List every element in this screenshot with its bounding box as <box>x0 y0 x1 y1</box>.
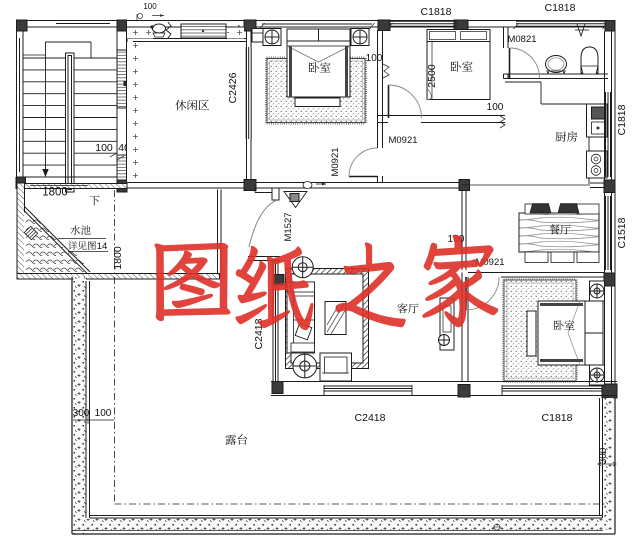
svg-text:C1818: C1818 <box>421 6 452 18</box>
svg-text:100: 100 <box>143 2 157 11</box>
svg-text:C1818: C1818 <box>545 2 576 14</box>
svg-text:M0821: M0821 <box>507 34 536 45</box>
svg-text:C1518: C1518 <box>616 217 628 248</box>
svg-text:C1818: C1818 <box>542 412 573 424</box>
svg-text:100: 100 <box>95 142 113 154</box>
svg-text:C2418: C2418 <box>355 412 386 424</box>
svg-text:14: 14 <box>97 241 108 252</box>
svg-text:300: 300 <box>598 447 609 464</box>
svg-text:100: 100 <box>95 408 112 419</box>
svg-text:M0921: M0921 <box>388 135 417 146</box>
svg-text:1800: 1800 <box>112 246 124 270</box>
svg-text:M0921: M0921 <box>330 147 341 176</box>
svg-text:1800: 1800 <box>42 187 68 199</box>
svg-text:C1818: C1818 <box>616 104 628 135</box>
svg-text:M1527: M1527 <box>283 212 294 241</box>
svg-text:100: 100 <box>366 53 383 64</box>
svg-text:2500: 2500 <box>426 64 438 88</box>
svg-text:100: 100 <box>487 102 504 113</box>
svg-text:C2426: C2426 <box>227 72 239 103</box>
svg-text:300: 300 <box>73 408 90 419</box>
